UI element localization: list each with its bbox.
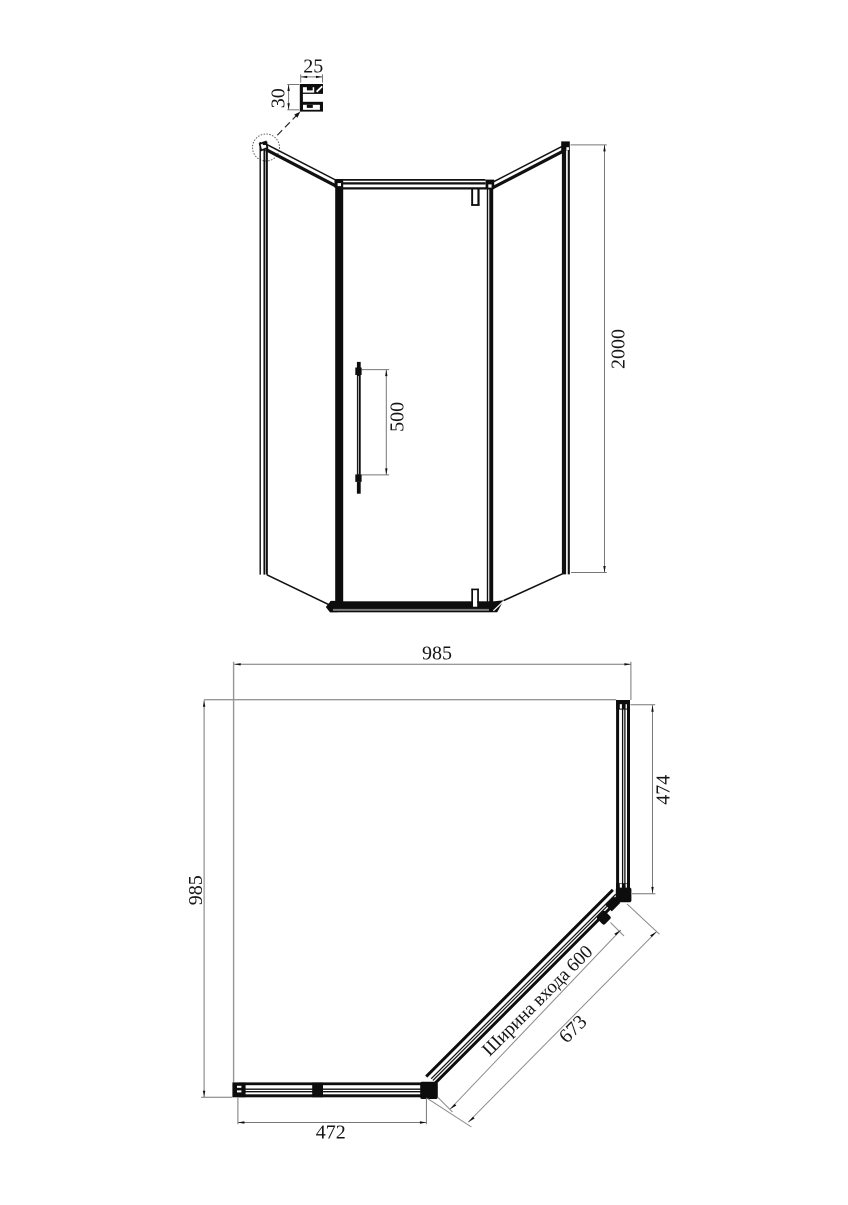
svg-text:985: 985 [185, 875, 207, 905]
svg-text:25: 25 [303, 56, 323, 78]
svg-text:30: 30 [267, 88, 289, 108]
svg-text:472: 472 [316, 1121, 346, 1143]
svg-text:2000: 2000 [607, 329, 629, 369]
svg-text:474: 474 [652, 775, 674, 805]
svg-text:500: 500 [386, 402, 408, 432]
svg-text:985: 985 [422, 643, 452, 665]
